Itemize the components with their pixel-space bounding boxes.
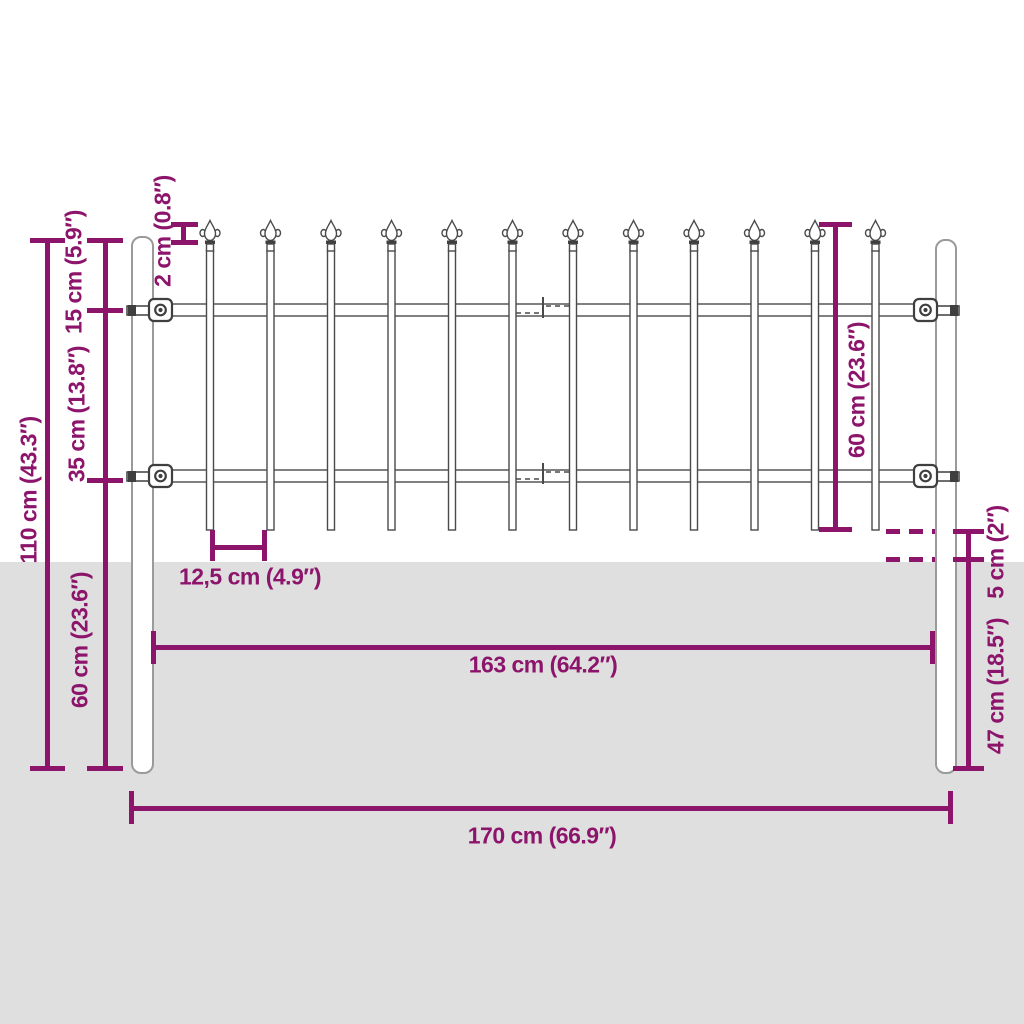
spear-finial-icon xyxy=(689,221,700,241)
picket xyxy=(684,221,704,531)
spear-finial-icon xyxy=(386,221,397,241)
picket xyxy=(805,221,825,531)
spear-finial-icon xyxy=(749,221,760,241)
dim-tick xyxy=(953,557,984,562)
dim-line xyxy=(833,222,838,532)
picket xyxy=(442,221,462,531)
spear-finial-icon xyxy=(870,221,881,241)
picket xyxy=(503,221,523,531)
spear-finial-icon xyxy=(326,221,337,241)
right-post xyxy=(936,240,956,773)
dim-line xyxy=(153,645,933,650)
dim-label-ground-clearance: 5 cm (2″) xyxy=(983,505,1010,598)
dim-line xyxy=(45,238,50,771)
dim-tick xyxy=(151,631,156,664)
dim-label-panel-height: 60 cm (23.6″) xyxy=(844,322,871,458)
picket xyxy=(563,221,583,531)
dim-label-rail-spacing: 35 cm (13.8″) xyxy=(64,346,91,482)
dim-label-total-height: 110 cm (43.3″) xyxy=(16,416,43,563)
dim-tick xyxy=(87,308,123,313)
dim-cap xyxy=(819,222,852,227)
dim-tick xyxy=(87,478,123,483)
spear-finial-icon xyxy=(205,221,216,241)
dim-tick xyxy=(129,791,134,824)
spear-finial-icon xyxy=(628,221,639,241)
dim-cap xyxy=(87,766,123,771)
dim-cap xyxy=(87,238,123,243)
dim-tick xyxy=(262,530,267,561)
fence-drawing xyxy=(0,0,1024,1024)
picket xyxy=(321,221,341,531)
picket xyxy=(200,221,220,531)
dim-tick xyxy=(210,530,215,561)
dim-line xyxy=(966,529,971,771)
dim-label-panel-width: 163 cm (64.2″) xyxy=(469,652,618,679)
dim-cap xyxy=(819,527,852,532)
picket xyxy=(624,221,644,531)
dim-line xyxy=(131,806,953,811)
dim-line xyxy=(212,545,267,550)
spear-finial-icon xyxy=(447,221,458,241)
dim-label-total-width: 170 cm (66.9″) xyxy=(468,823,617,850)
spear-finial-icon xyxy=(265,221,276,241)
dim-cap xyxy=(953,529,984,534)
dim-cap xyxy=(30,766,65,771)
dim-cap xyxy=(953,766,984,771)
dim-label-ground-depth: 47 cm (18.5″) xyxy=(983,618,1010,754)
picket xyxy=(382,221,402,531)
dim-tick xyxy=(948,791,953,824)
dim-label-post-top-to-rail: 15 cm (5.9″) xyxy=(61,210,88,334)
picket xyxy=(261,221,281,531)
picket xyxy=(745,221,765,531)
dim-label-rail-to-post-bottom: 60 cm (23.6″) xyxy=(67,572,94,708)
dim-label-picket-spacing: 12,5 cm (4.9″) xyxy=(179,564,321,591)
dim-line xyxy=(103,238,108,771)
spear-finial-icon xyxy=(507,221,518,241)
dim-tick xyxy=(930,631,935,664)
dimension-diagram: 110 cm (43.3″) 15 cm (5.9″) 35 cm (13.8″… xyxy=(0,0,1024,1024)
spear-finial-icon xyxy=(568,221,579,241)
dim-label-spear-height: 2 cm (0.8″) xyxy=(150,175,177,287)
